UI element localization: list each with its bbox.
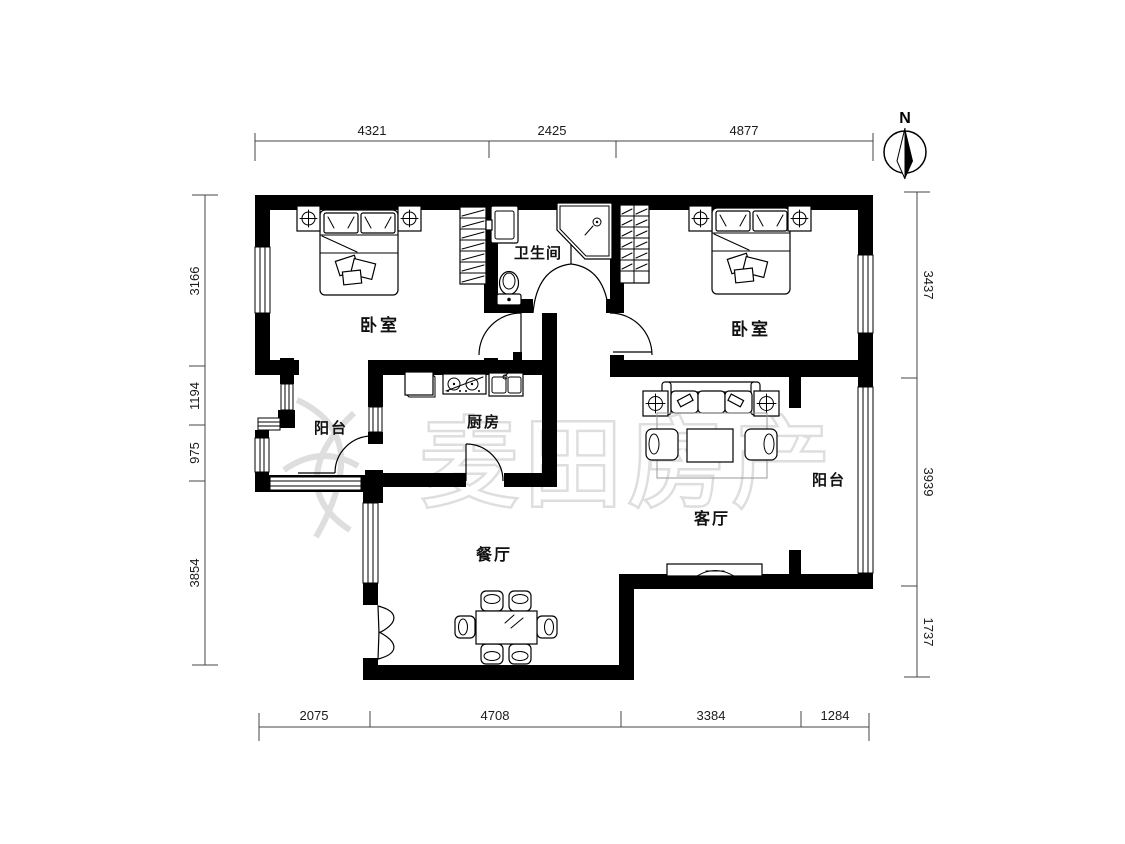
window-balcony-bottom: [270, 477, 361, 490]
window-balcony-kitchen: [369, 407, 382, 432]
window-balcony-left-upper: [281, 384, 293, 410]
compass: N: [884, 110, 926, 179]
label-living-room: 客厅: [694, 509, 730, 528]
stove-icon: [443, 374, 486, 394]
armchair-left-icon: [646, 429, 678, 460]
dim-bottom-2: 4708: [481, 708, 510, 723]
nightstand-left-2-icon: [398, 206, 421, 231]
entry-double-door: [378, 606, 394, 659]
dim-bottom-3: 3384: [697, 708, 726, 723]
wardrobe-left-icon: [460, 207, 486, 284]
dim-left-3: 975: [187, 442, 202, 464]
bathroom-sink-icon: [486, 206, 518, 243]
fridge-icon: [405, 372, 435, 397]
dim-top-2: 2425: [538, 123, 567, 138]
kitchen-sink-icon: [489, 369, 523, 396]
tv-cabinet-icon: [667, 564, 762, 576]
compass-north-label: N: [899, 110, 911, 127]
floor-plan-canvas: 麦田房产: [0, 0, 1125, 844]
bed-right-icon: [712, 208, 790, 294]
toilet-icon: [497, 272, 521, 306]
dimension-top: 4321 2425 4877: [255, 123, 873, 161]
sofa-icon: [662, 382, 760, 415]
window-balcony-right: [858, 387, 873, 573]
side-table-right-icon: [754, 391, 779, 416]
bedroom-left-door: [479, 313, 521, 355]
dimension-left: 3166 1194 975 3854: [187, 195, 218, 665]
coffee-table-icon: [687, 429, 733, 462]
window-bedroom-left: [255, 247, 270, 313]
label-bedroom-left: 卧室: [360, 315, 400, 335]
wardrobe-right-icon: [620, 205, 649, 283]
dim-right-2: 3939: [921, 468, 936, 497]
label-kitchen: 厨房: [467, 413, 501, 431]
dim-right-1: 3437: [921, 271, 936, 300]
dim-bottom-4: 1284: [821, 708, 850, 723]
nightstand-left-1-icon: [297, 206, 320, 231]
dim-bottom-1: 2075: [300, 708, 329, 723]
label-dining-room: 餐厅: [475, 545, 512, 564]
dim-left-2: 1194: [187, 382, 202, 410]
dim-left-4: 3854: [187, 559, 202, 588]
shower-icon: [557, 203, 612, 259]
label-balcony-left: 阳台: [314, 419, 348, 437]
label-bathroom: 卫生间: [514, 244, 562, 262]
dim-top-1: 4321: [358, 123, 387, 138]
dim-right-3: 1737: [921, 618, 936, 647]
nightstand-right-1-icon: [689, 206, 712, 231]
window-dining-left: [363, 503, 378, 583]
label-bedroom-right: 卧室: [731, 319, 771, 339]
bed-left-icon: [320, 210, 398, 295]
dimension-bottom: 2075 4708 3384 1284: [259, 708, 869, 741]
dim-top-3: 4877: [730, 123, 759, 138]
window-balcony-jog: [258, 418, 280, 430]
dining-set-icon: [455, 591, 557, 664]
window-balcony-left-lower: [255, 438, 269, 472]
window-bedroom-right: [858, 255, 873, 333]
dim-left-1: 3166: [187, 267, 202, 296]
dimension-right: 3437 3939 1737: [901, 192, 936, 677]
label-balcony-right: 阳台: [812, 471, 846, 489]
bedroom-right-door: [610, 313, 652, 355]
nightstand-right-2-icon: [788, 206, 811, 231]
side-table-left-icon: [643, 391, 668, 416]
armchair-right-icon: [745, 429, 777, 460]
